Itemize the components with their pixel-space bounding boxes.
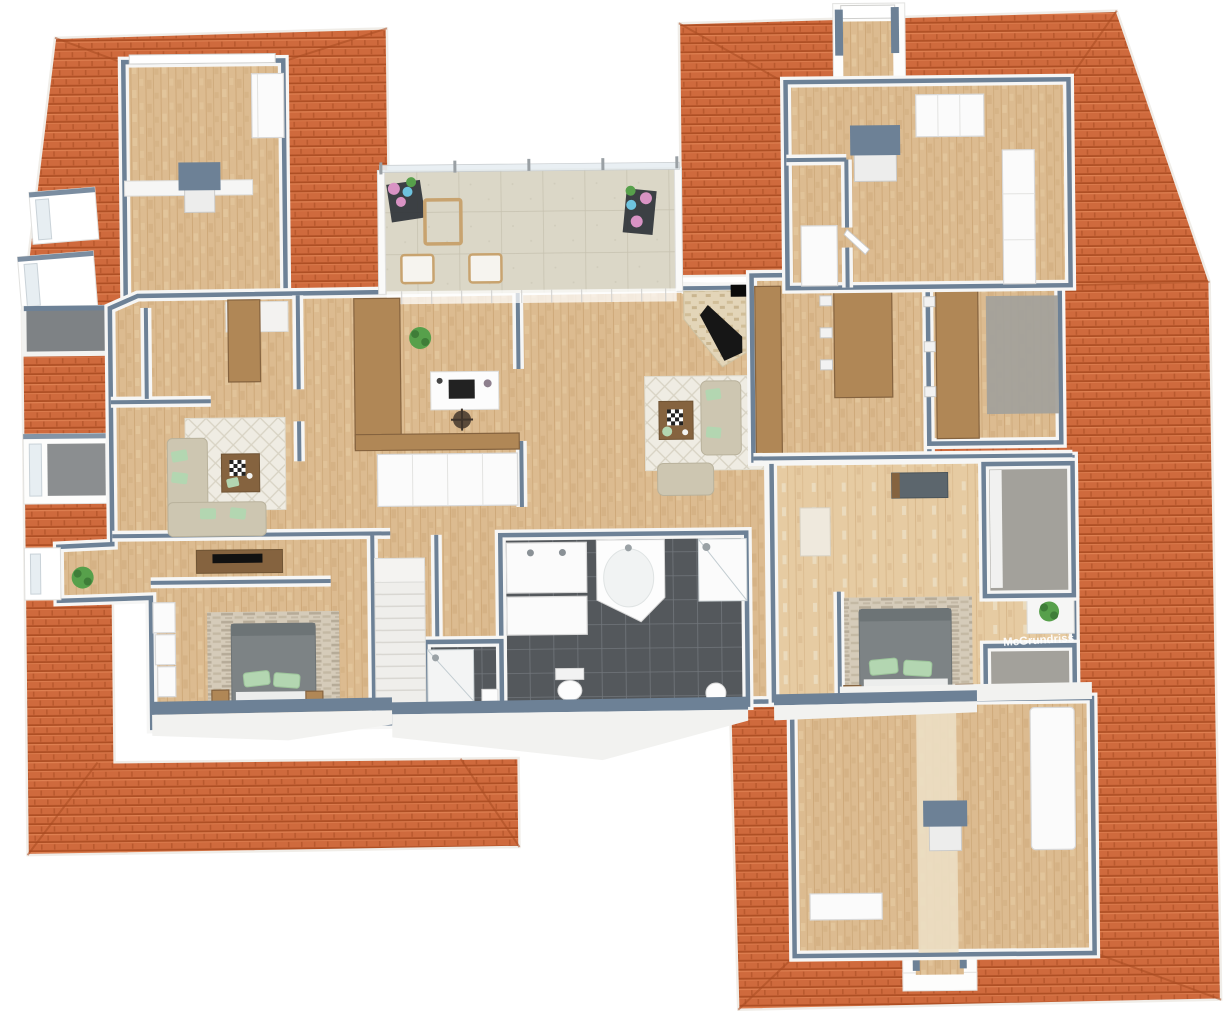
bedroom-right	[843, 596, 973, 699]
dining-table	[834, 285, 893, 398]
gray-counter-area	[986, 295, 1059, 414]
wc-room	[425, 641, 502, 708]
window-band	[129, 54, 275, 65]
terrace-flower-stand-right	[622, 185, 657, 235]
shelf-unit-vertical	[354, 298, 402, 448]
chair	[820, 328, 832, 338]
desk	[431, 371, 499, 410]
terrace	[377, 156, 683, 304]
terrace-chair-1	[401, 255, 433, 283]
checkers-board	[667, 409, 683, 425]
shelf-unit-horizontal	[355, 433, 519, 451]
checkers-board	[229, 460, 245, 476]
wc-sink	[482, 689, 498, 701]
storage-bench-bottom	[810, 893, 882, 920]
sideboard	[755, 286, 783, 456]
coffee-table	[659, 401, 693, 439]
bath-cabinet	[507, 596, 587, 635]
dresser	[916, 94, 984, 137]
shower	[698, 539, 747, 601]
storage-bench-right	[1030, 707, 1075, 849]
dormer-window-top-left-2	[17, 251, 97, 313]
kitchen-table	[936, 284, 980, 438]
room-attic-top-left	[123, 53, 286, 308]
bed	[859, 608, 952, 695]
floorplan-canvas: McGrundriss	[0, 0, 1228, 1024]
toilet	[556, 668, 584, 700]
pillow	[200, 508, 216, 519]
armchair	[657, 463, 713, 496]
pillow	[273, 672, 300, 688]
dining-room	[752, 274, 930, 461]
pillow	[869, 658, 898, 676]
tv-lowboard	[892, 473, 948, 499]
bed	[231, 623, 316, 706]
dormer-top-right	[833, 3, 906, 84]
tv	[212, 554, 262, 564]
pillow	[705, 388, 721, 401]
tv-board	[196, 549, 282, 573]
floorplan-scene: McGrundriss	[15, 0, 1221, 1017]
walk-in-closet-upper	[984, 463, 1074, 596]
wardrobe	[251, 73, 284, 137]
hall-wardrobe	[800, 508, 831, 556]
terrace-wall-left	[377, 170, 385, 294]
terrace-wall-right	[674, 167, 682, 291]
chair	[924, 342, 935, 352]
chimney-top-right	[850, 125, 901, 182]
flue	[731, 285, 748, 297]
room-attic-top-right	[786, 79, 1071, 288]
dormer-window-top-left-1	[29, 187, 99, 244]
shower-cabin	[427, 649, 474, 701]
wardrobe-brown	[228, 300, 261, 382]
chimney-top-left	[178, 162, 221, 212]
laptop	[449, 379, 475, 398]
staircase	[374, 558, 426, 705]
vanity-cabinet	[506, 542, 587, 593]
chair	[925, 387, 936, 397]
bathroom	[500, 533, 748, 708]
chair	[924, 297, 935, 307]
dormer-window-left-mid	[23, 433, 112, 504]
chair	[820, 360, 832, 370]
closet-shelf	[990, 470, 1003, 588]
pillow	[171, 472, 188, 485]
chair	[820, 296, 832, 306]
pillow	[243, 670, 270, 687]
hall-cabinet	[801, 226, 838, 286]
pillow	[229, 507, 246, 520]
chimney-bottom	[923, 800, 968, 850]
pillow	[706, 426, 722, 438]
pillow	[903, 660, 932, 677]
coffee-table	[221, 454, 259, 492]
terrace-chair-2	[469, 254, 501, 282]
dormer-alcove-left	[24, 305, 110, 354]
room-attic-bottom-right	[792, 698, 1095, 956]
kitchen-room	[924, 272, 1062, 443]
wardrobe-tall	[1002, 150, 1035, 284]
